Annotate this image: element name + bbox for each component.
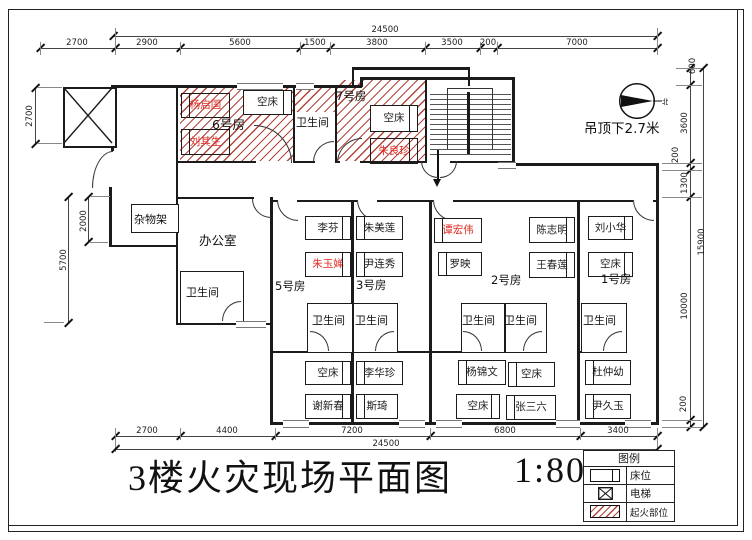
bed: 谢新春 [305, 394, 351, 419]
dim-ext [275, 428, 276, 440]
wall [656, 163, 659, 425]
bathroom-label: 卫生间 [504, 312, 537, 328]
bed: 谭宏伟 [434, 218, 482, 243]
bathroom-label: 卫生间 [296, 114, 329, 130]
wall [453, 200, 633, 202]
dim-label: 2700 [25, 96, 35, 136]
dim-label: 5600 [220, 38, 260, 48]
dim-ext [38, 87, 62, 88]
bed-name: 空床 [384, 113, 405, 124]
wall [270, 197, 273, 425]
window-mark [556, 420, 580, 428]
title-text: 3楼火灾现场平面图 [128, 449, 452, 501]
window-mark [236, 321, 266, 328]
bed: 王春莲 [529, 252, 575, 278]
dim-label: 2900 [127, 38, 167, 48]
dim-label: 3800 [357, 38, 397, 48]
wall [514, 163, 659, 166]
north-compass-icon: 北 [616, 82, 668, 122]
bed-name: 李华珍 [364, 368, 396, 379]
bed: 罗映 [438, 252, 482, 276]
dim-label: 3600 [680, 103, 690, 143]
wall [270, 422, 659, 425]
wall [468, 67, 470, 86]
bed-name: 刘其生 [190, 137, 222, 148]
legend: 图例 床位 电梯 起火部位 [583, 450, 675, 522]
bed: 张三六 [506, 395, 556, 420]
bed-name: 空床 [521, 369, 542, 380]
dim-label: 10000 [680, 286, 690, 326]
dim-line [113, 36, 657, 37]
dim-label: 24500 [366, 439, 406, 449]
window-mark [237, 83, 283, 90]
bed-name: 王春莲 [536, 260, 568, 271]
bed-name: 杜仲幼 [592, 367, 624, 378]
dim-ext [44, 322, 64, 323]
dim-ext [180, 42, 181, 55]
bed: 刘小华 [588, 216, 633, 240]
wall [360, 77, 363, 87]
bed: 李芬 [305, 216, 351, 240]
dim-label: 200 [679, 384, 689, 424]
wall [109, 245, 178, 247]
shelf-label: 杂物架 [134, 211, 167, 227]
fire-origin-symbol-icon [584, 503, 627, 520]
drawing-title: 3楼火灾现场平面图 1:80 [128, 449, 586, 501]
dim-label: 7200 [332, 426, 372, 436]
bed-name: 空床 [257, 97, 278, 108]
window-mark [399, 420, 425, 428]
bed-name: 李芬 [318, 223, 339, 234]
bed-name: 空床 [318, 368, 339, 379]
bed-name: 尹连秀 [364, 259, 396, 270]
elevator-x-icon [63, 87, 113, 144]
dim-ext [662, 427, 702, 428]
bed-name: 谭宏伟 [442, 225, 474, 236]
wall [512, 77, 515, 163]
bed-name: 朱良珍 [378, 146, 410, 157]
bed: 空床 [243, 90, 292, 115]
dim-line [690, 68, 691, 427]
bed-name: 谢新春 [312, 401, 344, 412]
dim-label: 7000 [557, 38, 597, 48]
bed: 空床 [370, 105, 418, 132]
dim-ext [425, 42, 426, 55]
bed: 尹久玉 [585, 394, 631, 419]
arrow-down-icon [433, 179, 441, 187]
bathroom-label: 卫生间 [312, 312, 345, 328]
wall [293, 161, 315, 163]
elevator-symbol-icon [584, 485, 627, 502]
office-label: 办公室 [199, 230, 237, 249]
legend-label: 床位 [627, 468, 674, 483]
room-label-7: 7号房 [336, 88, 366, 104]
floor-plan: 杨启国 空床 刘其生 空床 朱良珍 李芬 朱玉婵 空床 谢新春 朱美莲 尹连秀 … [0, 0, 752, 540]
wall [352, 67, 354, 86]
bed: 李华珍 [356, 361, 403, 385]
bed: 尹连秀 [356, 252, 403, 277]
bed-name: 尹久玉 [592, 401, 624, 412]
bed-name: 杨锦文 [466, 367, 498, 378]
dim-ext [90, 196, 110, 197]
dim-label: 1300 [680, 163, 690, 203]
dim-label: 15900 [697, 222, 707, 262]
bed-name: 朱玉婵 [312, 259, 344, 270]
dim-line [115, 436, 657, 437]
window-mark [283, 420, 309, 428]
bathroom-label: 卫生间 [583, 312, 616, 328]
bed: 斯琦 [356, 394, 398, 419]
wall [176, 197, 254, 199]
dim-label: 2000 [79, 201, 89, 241]
room-label-3: 3号房 [356, 277, 386, 293]
wall [293, 85, 295, 163]
room-label-2: 2号房 [491, 272, 521, 288]
wall [352, 67, 470, 70]
dim-label: 5700 [59, 240, 69, 280]
dim-ext [38, 143, 62, 144]
dim-label: 3500 [432, 38, 472, 48]
wall [297, 200, 357, 202]
bed: 杨锦文 [458, 360, 506, 385]
dim-label: 600 [688, 46, 698, 86]
legend-row-fire: 起火部位 [584, 503, 674, 520]
bathroom-label: 卫生间 [355, 312, 388, 328]
bed: 空床 [456, 394, 500, 419]
legend-row-elevator: 电梯 [584, 485, 674, 503]
wall [577, 200, 580, 425]
bed: 朱良珍 [370, 138, 418, 164]
stairs-center-rail [467, 92, 470, 154]
bed: 空床 [305, 361, 351, 385]
dim-label: 200 [468, 38, 508, 48]
dim-ext [430, 428, 431, 440]
bed: 杜仲幼 [585, 360, 631, 385]
fire-origin-zone-bath [295, 88, 335, 112]
window-mark [296, 83, 314, 90]
room-label-1: 1号房 [601, 271, 631, 287]
bed-name: 张三六 [515, 402, 547, 413]
north-label: 北 [662, 98, 668, 106]
dim-label: 3400 [598, 426, 638, 436]
legend-row-bed: 床位 [584, 467, 674, 485]
title-scale: 1:80 [514, 449, 586, 501]
dim-ext [115, 28, 116, 55]
bed-name: 斯琦 [367, 401, 388, 412]
bed: 朱玉婵 [305, 252, 351, 277]
bed-name: 朱美莲 [364, 223, 396, 234]
bed: 朱美莲 [356, 216, 403, 240]
wall [176, 161, 256, 163]
wall [425, 77, 427, 163]
bathroom-label: 卫生间 [462, 312, 495, 328]
dim-label: 24500 [365, 25, 405, 35]
bed-name: 空床 [600, 259, 621, 270]
stairs-rail [447, 88, 493, 149]
dim-ext [657, 28, 658, 55]
dim-ext [40, 42, 41, 55]
dim-label: 4400 [207, 426, 247, 436]
dim-line [40, 48, 657, 49]
dim-ext [90, 242, 108, 243]
wall [360, 77, 514, 80]
dim-ext [180, 428, 181, 440]
bed-name: 陈志明 [536, 225, 568, 236]
dim-label: 6800 [485, 426, 525, 436]
room-label-5: 5号房 [275, 278, 305, 294]
dim-label: 2700 [127, 426, 167, 436]
bed: 陈志明 [529, 217, 575, 243]
bed-symbol-icon [584, 467, 627, 484]
bed-name: 刘小华 [595, 223, 627, 234]
bed-name: 罗映 [450, 259, 471, 270]
bed-name: 杨启国 [190, 100, 222, 111]
legend-title: 图例 [584, 451, 674, 467]
window-mark [498, 162, 516, 169]
wall [377, 200, 433, 202]
dim-label: 1500 [295, 38, 335, 48]
dim-line [35, 88, 36, 145]
dim-label: 2700 [57, 38, 97, 48]
bed-name: 空床 [468, 401, 489, 412]
dim-ext [580, 428, 581, 440]
bathroom-label: 卫生间 [186, 284, 219, 300]
bed: 空床 [508, 362, 555, 387]
legend-label: 电梯 [627, 486, 674, 501]
room-label-6: 6号房 [212, 114, 245, 133]
wall [429, 200, 432, 425]
legend-label: 起火部位 [627, 505, 674, 519]
window-mark [436, 420, 462, 428]
